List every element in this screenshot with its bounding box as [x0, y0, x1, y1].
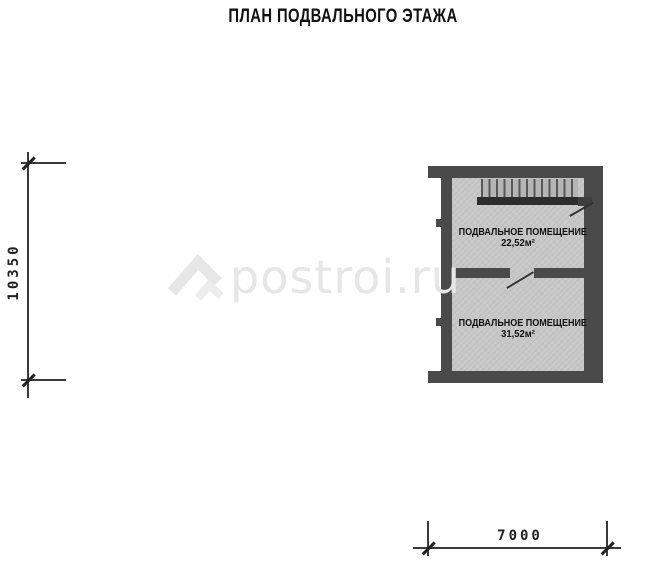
wall-pilaster	[436, 318, 442, 326]
wall-middle-right-segment	[534, 268, 584, 278]
watermark-text: postroi.ru	[230, 250, 461, 304]
room-1-area: 22,52м²	[459, 238, 578, 249]
dimension-left-line	[27, 152, 29, 398]
dimension-left-value: 10350	[6, 237, 22, 307]
wall-bottom	[428, 371, 603, 383]
dimension-bottom-value: 7000	[470, 528, 570, 544]
staircase	[481, 179, 578, 197]
room-1-label: ПОДВАЛЬНОЕ ПОМЕЩЕНИЕ 22,52м²	[459, 227, 578, 249]
dimension-bottom-line	[413, 547, 621, 549]
room-2-area: 31,52м²	[459, 329, 578, 340]
wall-top	[428, 166, 603, 178]
floor-plan-page: ПЛАН ПОДВАЛЬНОГО ЭТАЖА 10350 7000	[0, 0, 650, 566]
staircase-stringer	[477, 197, 579, 205]
wall-pilaster	[436, 219, 442, 227]
roof-logo-icon	[164, 248, 230, 317]
page-title: ПЛАН ПОДВАЛЬНОГО ЭТАЖА	[226, 6, 460, 28]
room-2-label: ПОДВАЛЬНОЕ ПОМЕЩЕНИЕ 31,52м²	[459, 318, 578, 340]
